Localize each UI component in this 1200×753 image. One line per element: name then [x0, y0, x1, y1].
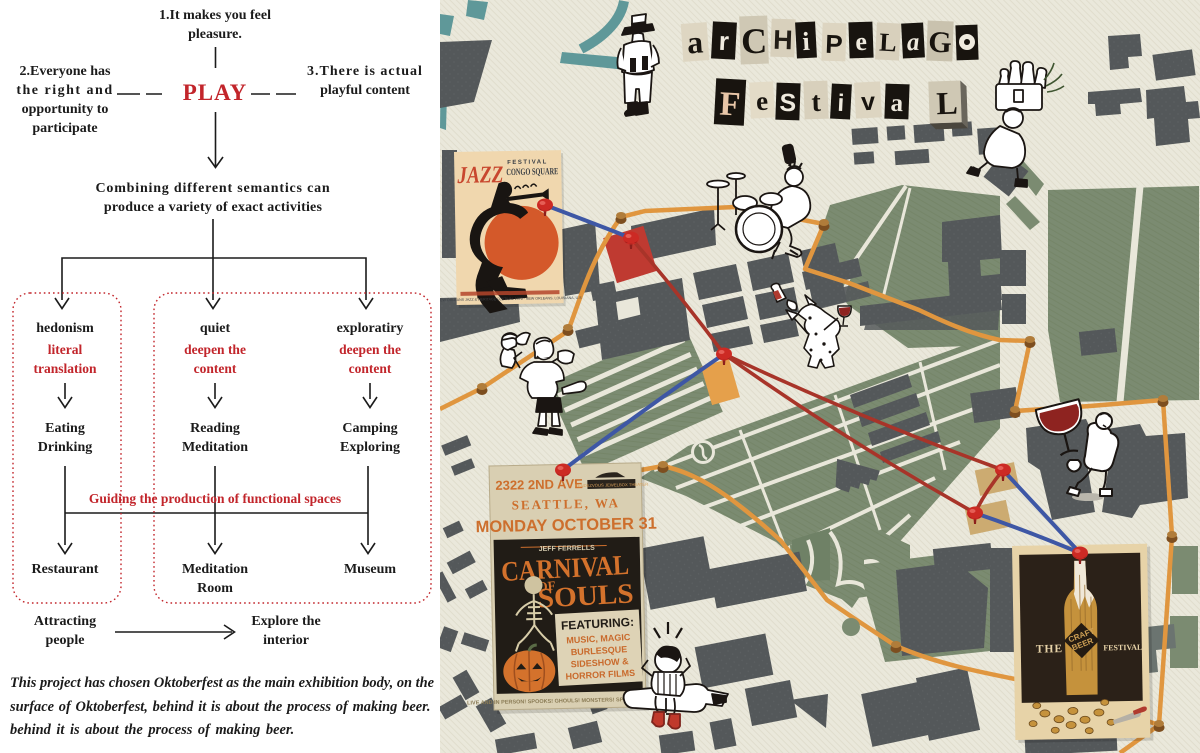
svg-text:P: P: [825, 29, 843, 60]
svg-text:JAZZ: JAZZ: [456, 162, 504, 189]
svg-text:SOULS: SOULS: [537, 578, 635, 614]
svg-text:FESTIVAL: FESTIVAL: [1103, 643, 1142, 653]
svg-text:CONGO SQUARE: CONGO SQUARE: [506, 167, 558, 178]
svg-text:SEATTLE, WA: SEATTLE, WA: [512, 495, 621, 512]
svg-text:t: t: [811, 87, 822, 118]
svg-text:C: C: [740, 21, 767, 62]
svg-text:2322 2ND AVE: 2322 2ND AVE: [495, 476, 583, 493]
svg-text:v: v: [860, 88, 875, 117]
svg-text:S: S: [779, 89, 797, 118]
svg-text:i: i: [837, 90, 845, 117]
svg-text:THE: THE: [1036, 643, 1064, 655]
svg-text:G: G: [928, 26, 952, 60]
svg-text:L: L: [936, 85, 959, 122]
svg-text:FESTIVAL: FESTIVAL: [507, 159, 548, 166]
svg-text:e: e: [755, 86, 769, 117]
svg-text:H: H: [773, 25, 794, 56]
svg-text:a: a: [686, 23, 704, 60]
svg-text:MONDAY OCTOBER 31: MONDAY OCTOBER 31: [475, 514, 657, 536]
svg-text:e: e: [855, 27, 868, 56]
svg-text:F: F: [719, 85, 742, 123]
svg-text:a: a: [906, 29, 920, 57]
svg-text:r: r: [718, 26, 730, 56]
svg-text:i: i: [802, 27, 811, 56]
svg-text:L: L: [879, 28, 898, 58]
svg-text:a: a: [890, 90, 904, 117]
